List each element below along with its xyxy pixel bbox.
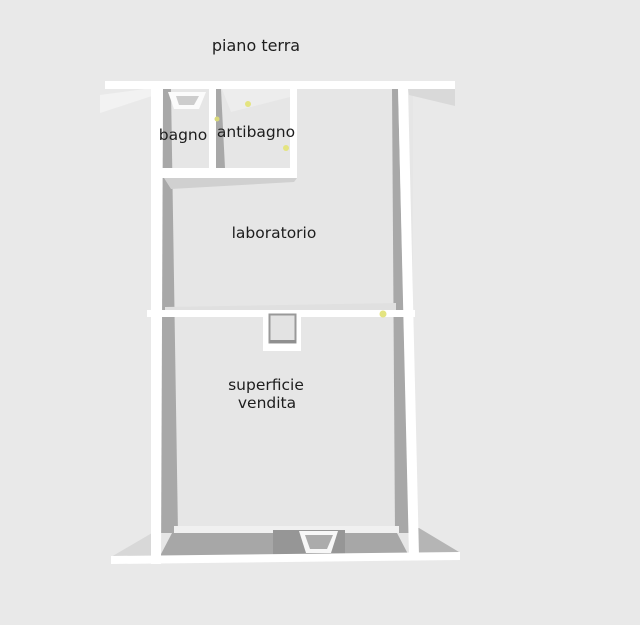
yellow-marker-icon [283, 145, 289, 151]
room-label-superficie-vendita-line1: superficie [228, 376, 304, 394]
plan-title: piano terra [212, 36, 300, 55]
yellow-marker-icon [245, 101, 251, 107]
bagno-block-bottom-wall [151, 168, 297, 178]
room-label-bagno: bagno [159, 126, 207, 144]
room-label-antibagno: antibagno [217, 123, 295, 141]
bagno-antibagno-divider-wall [209, 89, 216, 170]
left-wall [151, 87, 163, 564]
yellow-marker-icon [380, 311, 387, 318]
floor-plan-canvas: piano terra bagno antibagno laboratorio … [0, 0, 640, 625]
yellow-marker-icon [215, 117, 220, 122]
room-label-laboratorio: laboratorio [232, 224, 317, 242]
room-label-superficie-vendita-line2: vendita [238, 394, 296, 412]
floor-plan-page: piano terra bagno antibagno laboratorio … [0, 0, 640, 625]
middle-wall-doorway [270, 315, 296, 343]
